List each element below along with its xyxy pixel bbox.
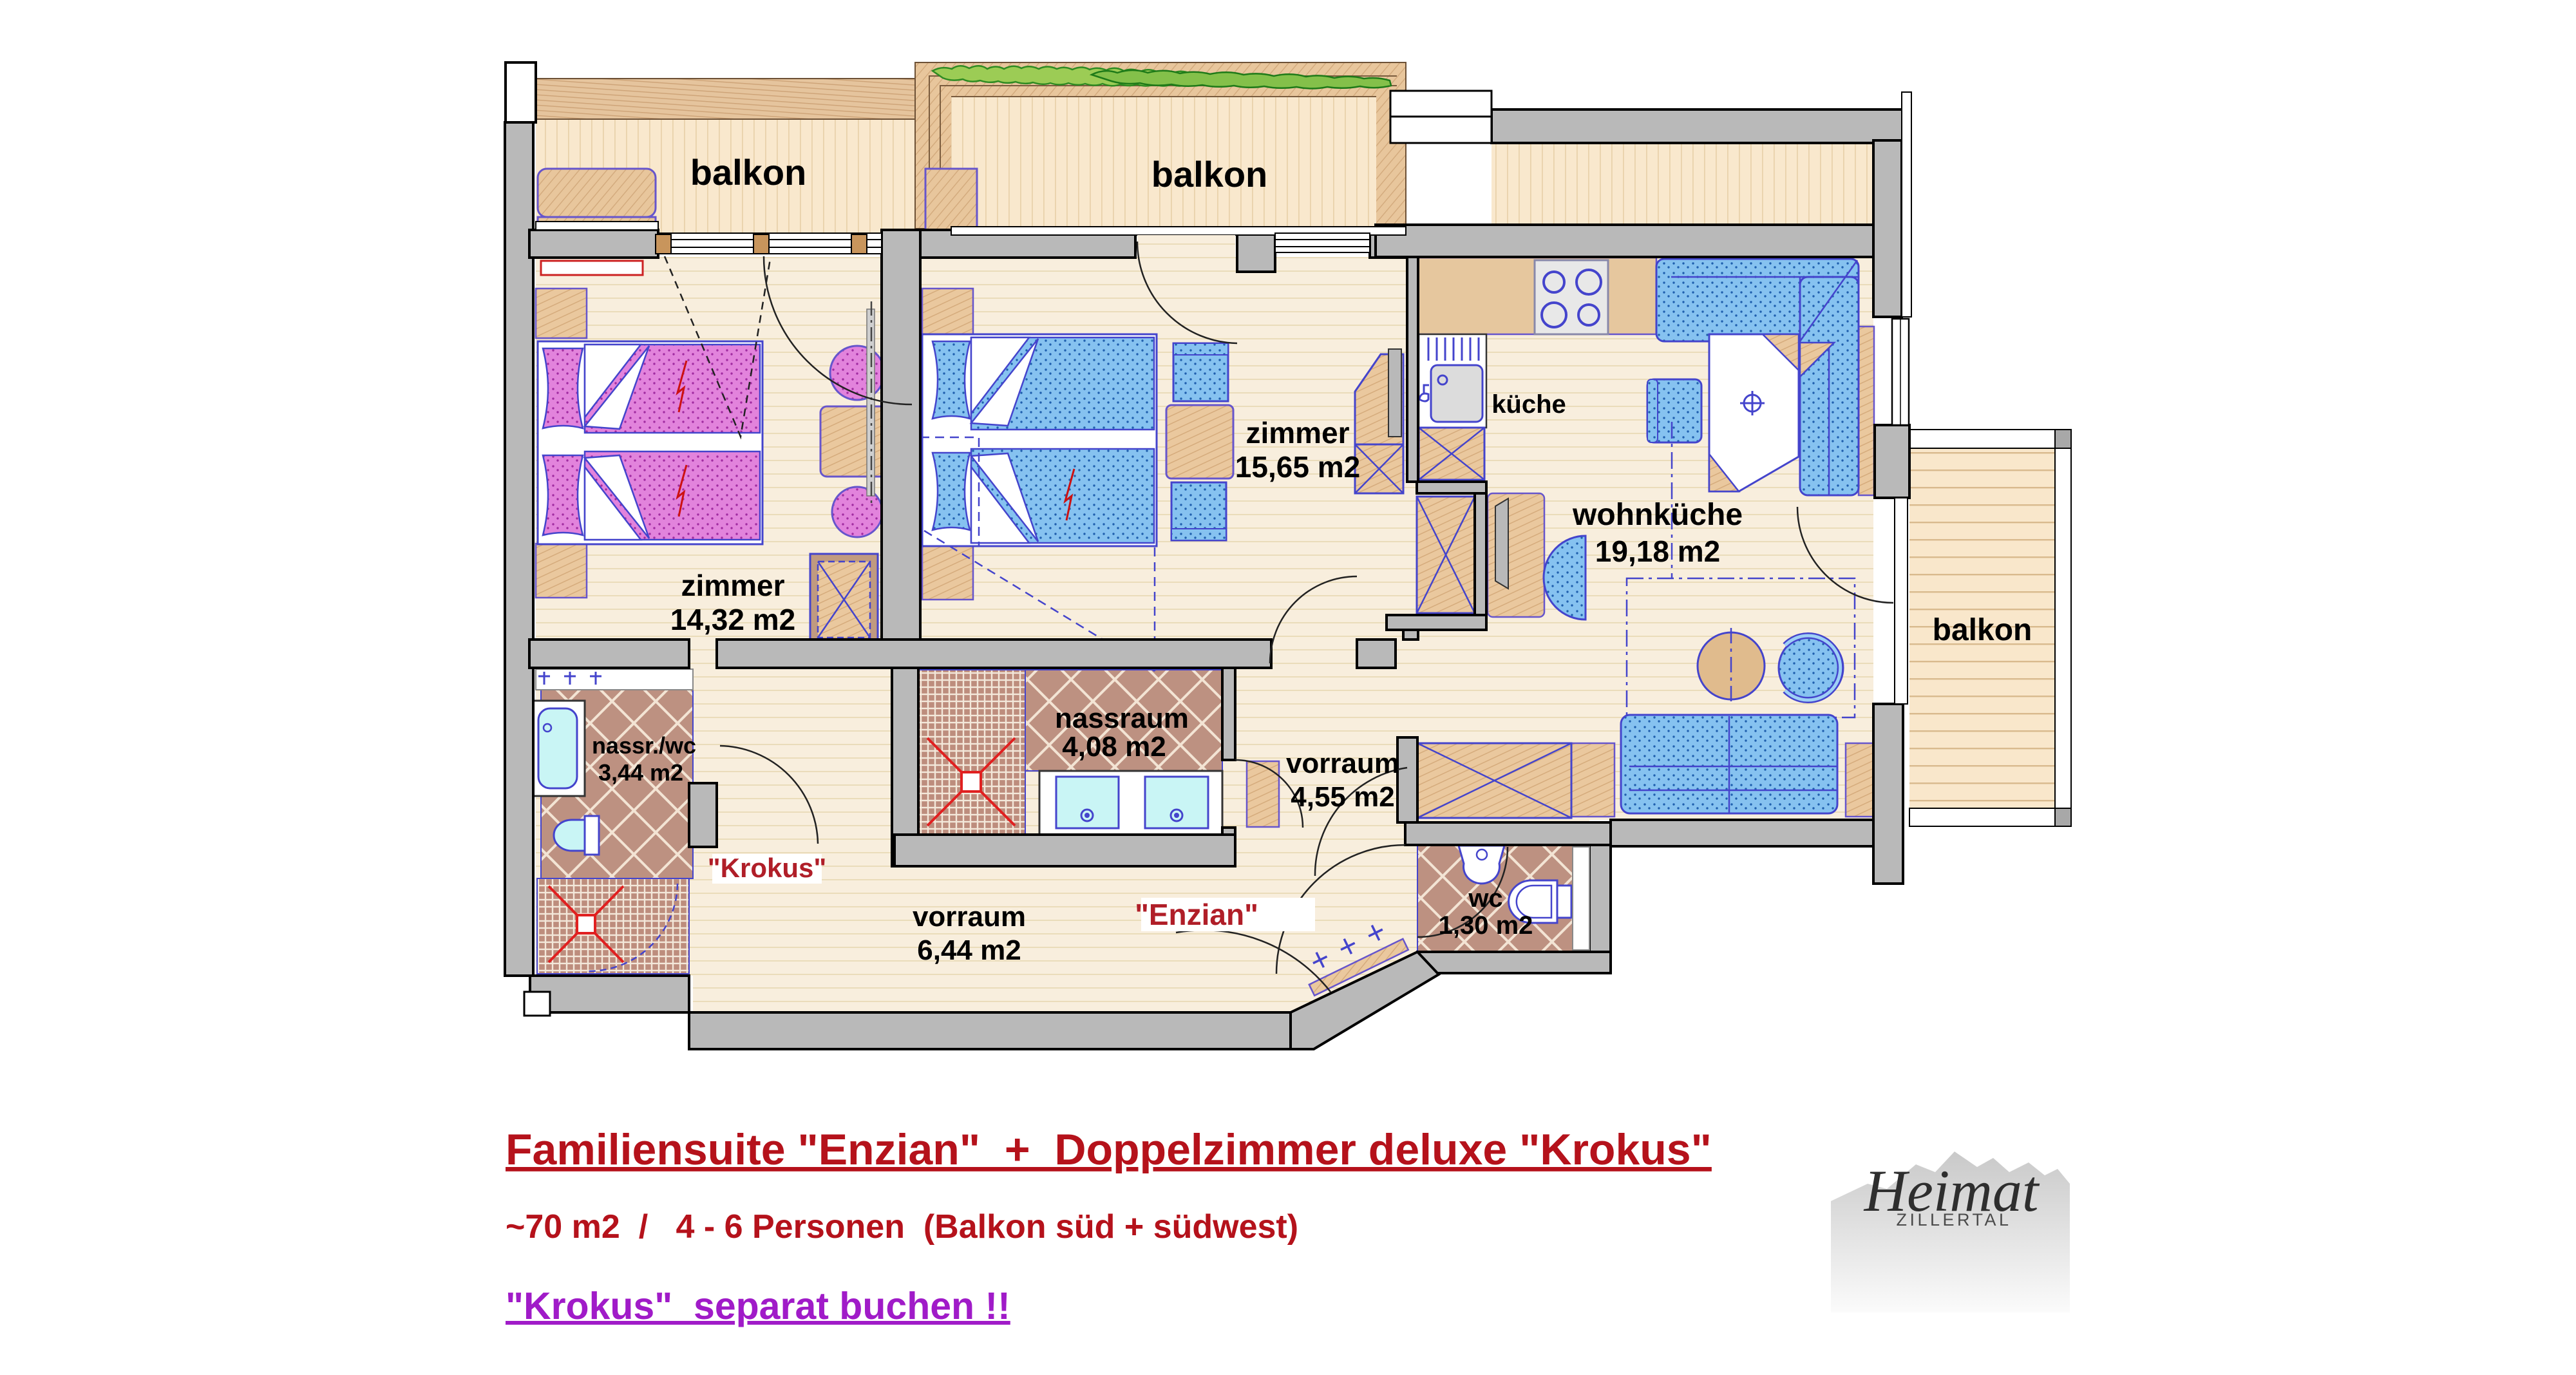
svg-text:4,08 m2: 4,08 m2 <box>1062 731 1166 763</box>
svg-text:balkon: balkon <box>690 152 806 193</box>
svg-text:4,55 m2: 4,55 m2 <box>1291 781 1394 813</box>
svg-text:nassr./wc: nassr./wc <box>592 732 696 759</box>
svg-text:3,44 m2: 3,44 m2 <box>598 759 683 786</box>
svg-text:wc: wc <box>1468 884 1502 913</box>
svg-text:balkon: balkon <box>1151 154 1267 194</box>
svg-text:Heimat: Heimat <box>1864 1158 2040 1224</box>
svg-text:19,18 m2: 19,18 m2 <box>1595 535 1720 568</box>
svg-text:wohnküche: wohnküche <box>1572 498 1743 532</box>
svg-text:"Enzian": "Enzian" <box>1135 898 1258 931</box>
svg-text:6,44 m2: 6,44 m2 <box>917 934 1021 966</box>
svg-text:balkon: balkon <box>1933 613 2032 647</box>
svg-text:vorraum: vorraum <box>913 901 1026 933</box>
svg-text:zimmer: zimmer <box>681 569 784 602</box>
svg-text:Familiensuite "Enzian" + Dop: Familiensuite "Enzian" + Doppelzimmer de… <box>506 1125 1712 1174</box>
svg-text:küche: küche <box>1492 390 1566 419</box>
svg-text:15,65 m2: 15,65 m2 <box>1235 450 1360 484</box>
svg-text:zimmer: zimmer <box>1245 416 1349 450</box>
svg-text:"Krokus": "Krokus" <box>708 853 827 883</box>
svg-text:nassraum: nassraum <box>1055 703 1189 734</box>
svg-text:14,32 m2: 14,32 m2 <box>670 603 795 636</box>
svg-text:1,30 m2: 1,30 m2 <box>1439 911 1533 940</box>
svg-text:"Krokus" separat buchen !!: "Krokus" separat buchen !! <box>506 1285 1010 1327</box>
svg-text:vorraum: vorraum <box>1286 748 1399 779</box>
svg-text:~70 m2 / 4 - 6 Personen (B: ~70 m2 / 4 - 6 Personen (Balkon süd + sü… <box>506 1208 1298 1246</box>
